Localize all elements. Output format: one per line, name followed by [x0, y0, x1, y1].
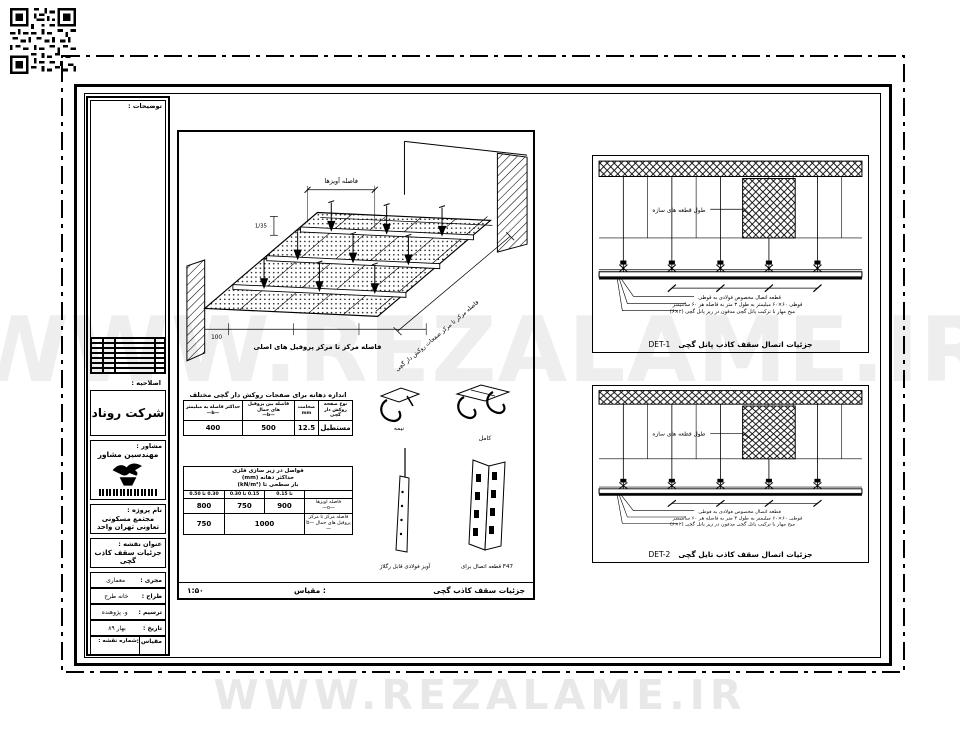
- det1-section-drawing: طول قطعه های سازه قطعه اتصال مخصوص فولاد…: [593, 156, 868, 336]
- dim-left-label: 1/35: [255, 223, 267, 229]
- project-box: نام پروژه : مجتمع مسکونی تعاونی تهران وا…: [90, 504, 166, 534]
- consultant-label: مشاور :: [91, 441, 165, 450]
- info-row-value: و. پژوهنده: [91, 609, 138, 616]
- revision-table: [91, 337, 165, 373]
- det-dimension: [668, 285, 822, 292]
- hanger-drawing: [396, 448, 409, 552]
- main-drawing-panel: فاصله آویزها 1/35 فاصله مرکز تا مرکز صفح…: [177, 130, 535, 600]
- slab-band: [599, 161, 862, 176]
- info-row-label: تاریخ :: [143, 625, 165, 632]
- watermark-bottom: WWW.REZALAME.IR: [0, 671, 960, 719]
- scale-label: مقیاس :: [294, 586, 326, 595]
- det2-caption-text: جزئیات اتصال سقف کاذب تایل گچی: [678, 550, 812, 559]
- det2-tag: DET-2: [648, 550, 670, 559]
- sheet-title-box: عنوان نقشه : جزئیات سقف کاذب گچی: [90, 538, 166, 568]
- notes-label: توضیحات :: [91, 101, 165, 110]
- full-clamp-drawing: [457, 385, 509, 418]
- det1-tag: DET-1: [648, 340, 670, 349]
- logo-barcode: [99, 489, 157, 496]
- main-panel-caption: جزئیات سقف کاذب گچی: [433, 586, 525, 595]
- info-row-value: معماری: [91, 577, 140, 584]
- f47-label: قطعه اتصال برای F47: [461, 564, 514, 570]
- iso-caption: فاصله مرکز تا مرکز پروفیل های اصلی: [254, 343, 382, 351]
- info-row: مجری : معماری: [90, 572, 166, 588]
- main-panel-caption-bar: ۱:۵۰ مقیاس : جزئیات سقف کاذب گچی: [179, 582, 533, 598]
- structure-block: [743, 179, 796, 238]
- structure-block: [743, 406, 796, 459]
- dim-right-label: فاصله مرکز تا مرکز صفحات روکش دار گچی: [393, 298, 480, 373]
- connector-details-drawing: نیمه کامل آویز فولادی قابل رگلاژ قطعه: [361, 380, 529, 585]
- hanger-label: آویز فولادی قابل رگلاژ: [379, 563, 431, 570]
- consultant-logo-bird-icon: [111, 459, 145, 487]
- sheet-title-label: عنوان نقشه :: [91, 539, 165, 548]
- project-label: نام پروژه :: [91, 505, 165, 514]
- consultant-box: مشاور : مهندسین مشاور: [90, 440, 166, 500]
- callout-3: میخ مهار با ترکیب پانل گچی مدفون در زیر …: [670, 521, 796, 528]
- company-name: شرکت روناد: [92, 406, 165, 420]
- info-row: ترسیم : و. پژوهنده: [90, 604, 166, 620]
- spacing-table-title: فواصل در زیر سازی فلزی حداکثر دهانه (mm)…: [184, 467, 353, 491]
- det2-section-drawing: طول قطعه های سازه قطعه اتصال مخصوص فولاد…: [593, 386, 868, 546]
- half-clamp-drawing: [381, 388, 419, 421]
- dim-bottom-value: 100: [211, 335, 222, 341]
- callout-3: میخ مهار با ترکیب پانل گچی مدفون در زیر …: [670, 308, 795, 315]
- dim-left: 1/35: [255, 216, 278, 235]
- revision-label: اصلاحیه :: [104, 378, 164, 387]
- det2-panel: طول قطعه های سازه قطعه اتصال مخصوص فولاد…: [592, 385, 869, 563]
- f47-connector-drawing: [469, 460, 505, 550]
- dim-top-label: فاصله آویزها: [324, 176, 358, 185]
- title-block: توضیحات : اصلاحیه : شرکت روناد مشاور : م…: [86, 96, 170, 656]
- structure-label: طول قطعه های سازه: [652, 432, 706, 438]
- consultant-name: مهندسین مشاور: [91, 450, 165, 459]
- info-row: طراح : خانه طرح: [90, 588, 166, 604]
- det1-caption: جزئیات اتصال سقف کاذب پانل گچی DET-1: [593, 337, 868, 351]
- det1-caption-text: جزئیات اتصال سقف کاذب پانل گچی: [678, 340, 812, 349]
- drawing-sheet: { "watermark": {"middle": "WWW.REZALAME.…: [0, 0, 960, 741]
- company-box: شرکت روناد: [90, 390, 166, 436]
- spacing-table: فواصل در زیر سازی فلزی حداکثر دهانه (mm)…: [183, 466, 353, 535]
- info-row-label: مجری :: [140, 577, 165, 584]
- info-row-label: طراح :: [142, 593, 165, 600]
- det2-caption: جزئیات اتصال سقف کاذب تایل گچی DET-2: [593, 547, 868, 561]
- callout-2: قوطی ۶۰×۶۰ میلیمتر به طول ۳ متر به فاصله…: [672, 516, 803, 522]
- panel-joint-lines: [599, 176, 862, 237]
- info-row-label: ترسیم :: [138, 609, 165, 616]
- sheet-title: جزئیات سقف کاذب گچی: [91, 548, 165, 566]
- span-table: اندازه دهانه برای صفحات روکش دار گچی مخت…: [183, 390, 353, 436]
- span-table-title: اندازه دهانه برای صفحات روکش دار گچی مخت…: [184, 390, 353, 401]
- scale-value: ۱:۵۰: [187, 586, 204, 595]
- scale-label: مقیاس :: [140, 637, 165, 645]
- project-name: مجتمع مسکونی تعاونی تهران واحد: [91, 514, 165, 532]
- half-clamp-label: نیمه: [394, 425, 404, 432]
- qr-code: [10, 8, 76, 74]
- info-row-value: خانه طرح: [91, 593, 142, 600]
- left-wall-hatch: [187, 260, 205, 361]
- callout-1: قطعه اتصال مخصوص فولادی به قوطی: [698, 509, 781, 515]
- slab-band: [599, 391, 862, 405]
- structure-label: طول قطعه های سازه: [652, 208, 705, 214]
- det-dimension: [668, 500, 822, 506]
- dim-bottom: 100: [205, 314, 426, 341]
- sheet-number-label: شماره نقشه :: [91, 637, 140, 654]
- full-clamp-label: کامل: [479, 435, 492, 442]
- right-wall-hatch: [497, 153, 527, 252]
- isometric-ceiling-drawing: فاصله آویزها 1/35 فاصله مرکز تا مرکز صفح…: [179, 132, 533, 387]
- panel-joint-lines: [599, 404, 862, 459]
- scale-sheetno-row: مقیاس : شماره نقشه :: [90, 636, 166, 655]
- notes-box: توضیحات :: [90, 100, 166, 374]
- callout-1: قطعه اتصال مخصوص فولادی به قوطی: [698, 295, 781, 301]
- info-row: تاریخ : بهار ۸۹: [90, 620, 166, 636]
- det1-panel: طول قطعه های سازه قطعه اتصال مخصوص فولاد…: [592, 155, 869, 353]
- callout-2: قوطی ۶۰×۶۰ میلیمتر به طول ۳ متر به فاصله…: [672, 302, 803, 308]
- info-row-value: بهار ۸۹: [91, 625, 143, 632]
